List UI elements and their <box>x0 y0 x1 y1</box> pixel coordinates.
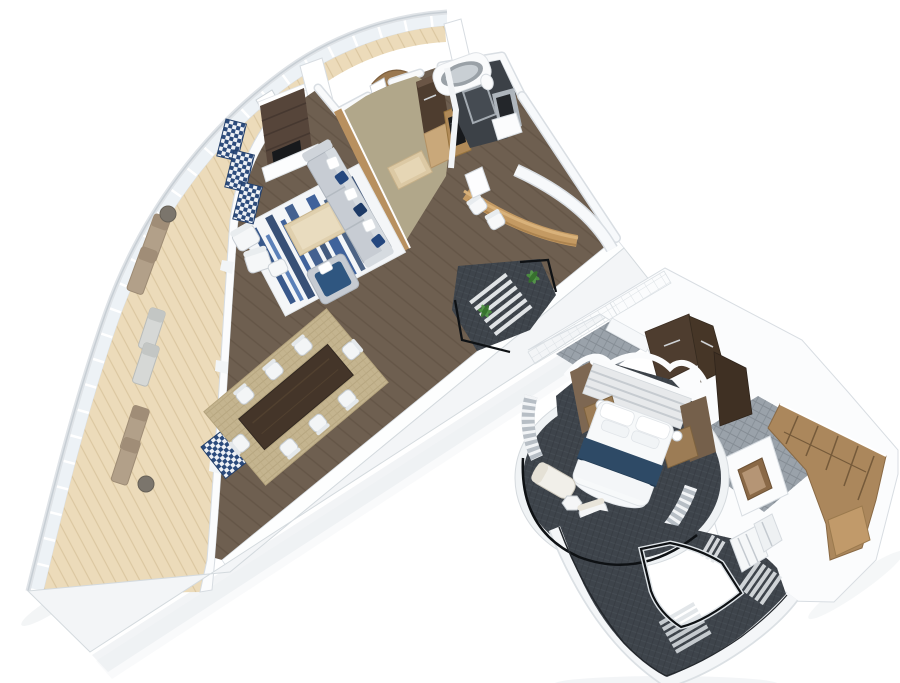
round-bedroom-wing <box>515 268 900 683</box>
floorplan-canvas <box>0 0 900 683</box>
round-side-table <box>138 476 154 492</box>
floorplan-svg <box>0 0 900 683</box>
round-side-table <box>160 206 176 222</box>
